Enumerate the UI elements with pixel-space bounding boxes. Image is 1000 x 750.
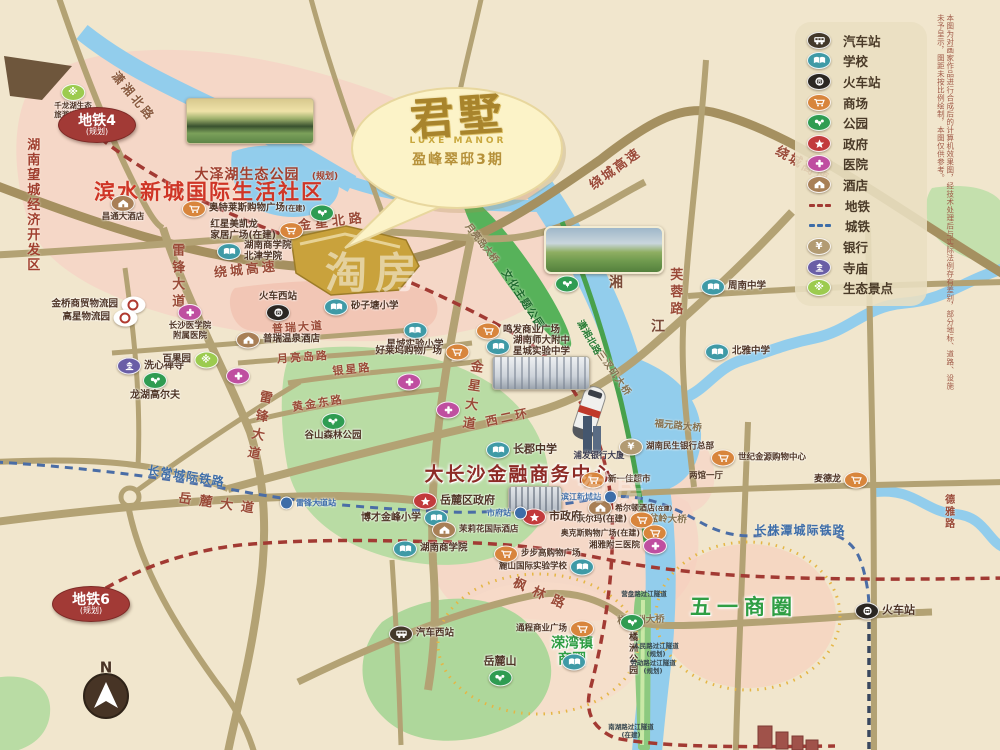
- legend-item-school: 学校: [807, 51, 927, 70]
- legend-label: 医院: [843, 154, 868, 173]
- legend-item-bank: ¥银行: [807, 237, 927, 256]
- temple-icon: [807, 259, 831, 276]
- legend-label: 地铁: [845, 196, 870, 215]
- bus-icon: [807, 32, 831, 49]
- legend-item-bus: 汽车站: [807, 31, 927, 50]
- legend-label: 酒店: [843, 175, 868, 194]
- metro-icon: [807, 204, 833, 207]
- school-icon: [807, 52, 831, 69]
- legend-item-hospital: 医院: [807, 154, 927, 173]
- legend-item-park: 公园: [807, 113, 927, 132]
- eco-icon: ※: [807, 279, 831, 296]
- hospital-icon: [807, 155, 831, 172]
- legend-item-gov: 政府: [807, 134, 927, 153]
- legend-label: 汽车站: [843, 31, 881, 50]
- legend-label: 寺庙: [843, 258, 868, 277]
- legend-panel: 汽车站学校火车站商场公园政府医院酒店地铁城铁¥银行寺庙※生态景点: [795, 22, 927, 306]
- pufa-tower: [583, 416, 601, 454]
- photo-inset-buildings: [492, 356, 590, 390]
- compass: [84, 674, 128, 718]
- legend-label: 政府: [843, 134, 868, 153]
- map-canvas: 潇湘北路金星北路绕城高速绕城高速绕城高速雷锋大道雷锋大道金星大道普瑞大道月亮岛路…: [0, 0, 1000, 750]
- city-blocks: [758, 726, 818, 750]
- photo-inset-grassland: [544, 226, 664, 274]
- legend-item-cityrail: 城铁: [807, 216, 927, 235]
- legend-label: 城铁: [845, 216, 870, 235]
- hotel-icon: [807, 176, 831, 193]
- legend-item-metro: 地铁: [807, 196, 927, 215]
- gov-icon: [807, 135, 831, 152]
- legend-item-mall: 商场: [807, 93, 927, 112]
- legend-label: 商场: [843, 93, 868, 112]
- legend-item-train: 火车站: [807, 72, 927, 91]
- legend-label: 公园: [843, 113, 868, 132]
- train-icon: [807, 73, 831, 90]
- legend-label: 火车站: [843, 72, 881, 91]
- disclaimer-text: 本图为对画家作品进行合成后的计算机效果图，经技术处理后与实际法例存有差别，部分地…: [936, 14, 955, 390]
- legend-item-temple: 寺庙: [807, 258, 927, 277]
- park-icon: [807, 114, 831, 131]
- cityrail-icon: [807, 224, 833, 227]
- legend-label: 生态景点: [843, 278, 893, 297]
- bank-icon: ¥: [807, 238, 831, 255]
- legend-label: 学校: [843, 51, 868, 70]
- legend-item-hotel: 酒店: [807, 175, 927, 194]
- legend-item-eco: ※生态景点: [807, 278, 927, 297]
- legend-label: 银行: [843, 237, 868, 256]
- photo-inset-lake: [186, 98, 314, 144]
- mall-icon: [807, 94, 831, 111]
- photo-inset-government: [508, 486, 562, 512]
